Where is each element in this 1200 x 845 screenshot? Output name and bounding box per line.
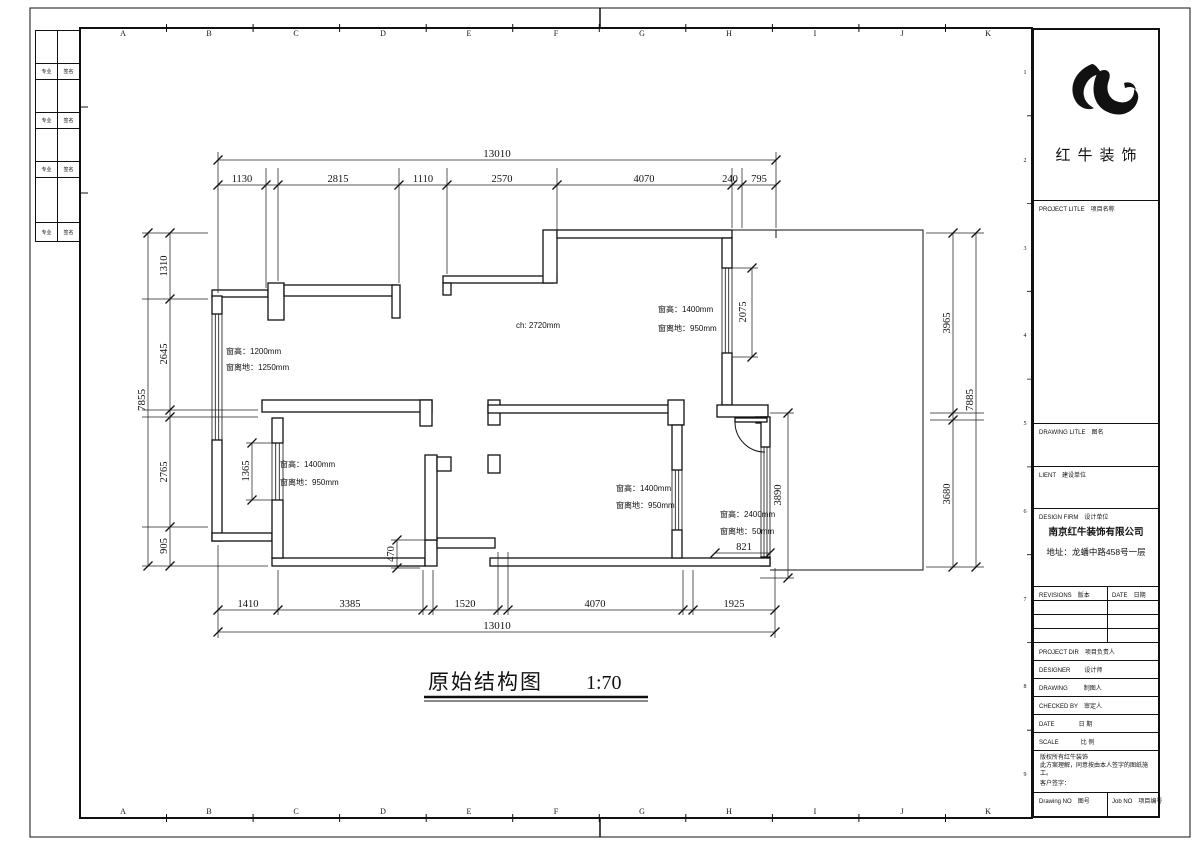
field-label-en: Drawing NO [1039, 799, 1072, 805]
field-project-title: PROJECT LITLE项目名称 [1039, 204, 1115, 213]
annotation-window: 窗高：1400mm [280, 459, 335, 469]
field-drawing-person: DRAWING制图人 [1039, 683, 1102, 692]
sheet-frame [30, 8, 1190, 837]
field-label-en: DESIGNER [1039, 668, 1070, 674]
field-client: LIENT建设单位 [1039, 470, 1086, 479]
field-label-cn: 建设单位 [1062, 473, 1086, 479]
signoff-cell: 签名 [57, 162, 79, 177]
dim-left-total: 7855 [136, 389, 148, 412]
annotation-window: 窗高：1400mm [658, 304, 713, 314]
dim-left-seg: 905 [159, 538, 170, 554]
grid-letter: A [120, 807, 126, 816]
annotation-window: 窗高：1400mm [616, 483, 671, 493]
customer-sign-label: 客户签字： [1040, 778, 1070, 787]
field-label-en: SCALE [1039, 740, 1059, 746]
dim-bottom-seg: 1410 [238, 599, 259, 610]
field-scale-row: SCALE比 例 [1039, 737, 1094, 746]
window-left-lower [272, 443, 283, 500]
copyright-line1: 版权所有红牛装饰 [1040, 754, 1156, 762]
dim-right-seg: 3965 [942, 313, 953, 334]
dim-right: 3965 3680 7885 [926, 229, 984, 572]
dim-top-seg: 240 [722, 174, 738, 185]
field-label-en: DATE [1039, 722, 1055, 728]
field-designer: DESIGNER设计师 [1039, 665, 1102, 674]
grid-number: 3 [1024, 246, 1027, 252]
grid-letter: C [293, 29, 298, 38]
copyright-line2: 此方案理解，同意按由本人签字的图纸施工。 [1040, 762, 1156, 778]
grid-number: 2 [1024, 158, 1027, 164]
grid-letter: B [206, 807, 211, 816]
field-label-cn: 比 例 [1081, 740, 1095, 746]
window-left-upper [212, 314, 222, 440]
brand-logo [1034, 44, 1158, 154]
dim-top-seg: 1130 [232, 174, 253, 185]
dim-top-seg: 795 [751, 174, 767, 185]
grid-letter: K [985, 29, 991, 38]
grid-letters-top: A B C D E F G H I J K [120, 24, 991, 38]
field-label-cn: 日 期 [1079, 722, 1093, 728]
annotation-window: 窗离地：950mm [616, 500, 675, 510]
field-label-en: PROJECT DIR [1039, 650, 1079, 656]
firm-address: 地址：龙蟠中路458号一层 [1034, 546, 1158, 558]
annotation-window: 窗离地：950mm [280, 477, 339, 487]
annotation-window: 窗高：2400mm [720, 509, 775, 519]
field-checked-by: CHECKED BY审定人 [1039, 701, 1102, 710]
dim-right-seg: 3680 [942, 484, 953, 505]
field-label-cn: 图名 [1091, 430, 1103, 436]
field-project-dir: PROJECT DIR项目负责人 [1039, 647, 1115, 656]
field-label-cn: 项目编号 [1138, 799, 1162, 805]
signoff-row: 专业 签名 [36, 63, 79, 79]
field-label-en: LIENT [1039, 473, 1056, 479]
grid-letter: B [206, 29, 211, 38]
dim-left-seg: 2645 [159, 344, 170, 365]
grid-letter: J [900, 807, 903, 816]
annotation-window: 窗高：1200mm [226, 346, 281, 356]
field-date-col: DATE日期 [1112, 590, 1146, 599]
annotation-window: 窗离地：1250mm [226, 362, 289, 372]
signoff-row: 专业 签名 [36, 112, 79, 128]
field-label-cn: 项目负责人 [1085, 650, 1115, 656]
brand-name: 红牛装饰 [1034, 144, 1158, 165]
dim-window-1365: 1365 [241, 461, 252, 482]
annotation-ceiling-height: ch: 2720mm [516, 321, 560, 330]
drawing-sheet: A B C D E F G H I J K A B C D E F G H I … [0, 0, 1200, 845]
field-label-en: CHECKED BY [1039, 704, 1078, 710]
drawing-scale-text: 1:70 [586, 672, 622, 694]
field-label-cn: 项目名称 [1091, 207, 1115, 213]
grid-number: 1 [1024, 70, 1027, 76]
firm-name: 南京红牛装饰有限公司 [1034, 524, 1158, 538]
grid-letter: I [814, 29, 817, 38]
signoff-blank [36, 177, 79, 222]
field-label-cn: 版本 [1078, 593, 1090, 599]
dim-top-seg: 2815 [328, 174, 349, 185]
grid-letter: H [726, 29, 732, 38]
grid-letter: H [726, 807, 732, 816]
grid-letter: G [639, 29, 645, 38]
field-label-en: PROJECT LITLE [1039, 207, 1085, 213]
dim-top-total: 13010 [483, 148, 511, 160]
drawing-title: 原始结构图 1:70 [424, 670, 648, 701]
field-date-row: DATE日 期 [1039, 719, 1092, 728]
grid-letter: G [639, 807, 645, 816]
field-label-cn: 图号 [1078, 799, 1090, 805]
dim-step-470: 470 [386, 546, 397, 562]
field-label-cn: 制图人 [1084, 686, 1102, 692]
field-label-cn: 审定人 [1084, 704, 1102, 710]
field-label-en: DRAWING LITLE [1039, 430, 1085, 436]
walls [212, 230, 923, 570]
grid-number: 4 [1024, 333, 1027, 339]
signoff-blank [36, 128, 79, 161]
dim-bottom-seg: 3385 [340, 599, 361, 610]
window-bath [761, 447, 770, 557]
dim-bottom-total: 13010 [483, 620, 511, 632]
grid-number: 8 [1024, 684, 1027, 690]
grid-letter: F [554, 807, 559, 816]
grid-letter: K [985, 807, 991, 816]
signoff-row: 专业 签名 [36, 161, 79, 177]
field-label-cn: 日期 [1134, 593, 1146, 599]
signoff-cell: 签名 [57, 64, 79, 79]
signoff-row: 专业 签名 [36, 222, 79, 241]
grid-letters-bottom: A B C D E F G H I J K [120, 807, 991, 822]
field-drawing-title: DRAWING LITLE图名 [1039, 427, 1103, 436]
title-block: 红牛装饰 PROJECT LITLE项目名称 DRAWING LITLE图名 L… [1032, 28, 1160, 818]
floor-plan-canvas: A B C D E F G H I J K A B C D E F G H I … [0, 0, 1200, 845]
annotation-window: 窗离地：50mm [720, 526, 775, 536]
signoff-cell: 签名 [57, 113, 79, 128]
signoff-cell: 专业 [36, 113, 57, 128]
copyright-note: 版权所有红牛装饰 此方案理解，同意按由本人签字的图纸施工。 [1040, 754, 1156, 778]
grid-letter: D [380, 29, 386, 38]
dim-top-seg: 1110 [413, 174, 433, 185]
window-center [672, 470, 682, 530]
dim-left-seg: 1310 [159, 256, 170, 277]
dim-top-seg: 4070 [634, 174, 655, 185]
signoff-cell: 专业 [36, 223, 57, 241]
grid-number: 5 [1024, 421, 1027, 427]
dim-top: 13010 1130 2815 1110 2570 4070 240 795 [214, 148, 781, 293]
grid-number: 7 [1024, 597, 1027, 603]
signoff-strip: 专业 签名 专业 签名 专业 签名 专业 签名 [35, 30, 80, 242]
grid-letter: E [467, 29, 472, 38]
field-design-firm: DESIGN FIRM设计单位 [1039, 512, 1108, 521]
dim-window-2075: 2075 [738, 302, 749, 323]
signoff-cell: 签名 [57, 223, 79, 241]
dim-bath-821: 821 [736, 542, 752, 553]
field-label-en: DATE [1112, 593, 1128, 599]
grid-letter: I [814, 807, 817, 816]
annotations: 窗高：1200mm 窗离地：1250mm ch: 2720mm 窗高：1400m… [226, 304, 775, 536]
window-right-upper [722, 268, 732, 353]
dim-left: 1310 2645 2765 905 7855 [136, 229, 268, 571]
grid-letter: D [380, 807, 386, 816]
grid-letter: J [900, 29, 903, 38]
dim-bottom-seg: 4070 [585, 599, 606, 610]
signoff-cell: 专业 [36, 64, 57, 79]
dim-bottom-seg: 1925 [724, 599, 745, 610]
dim-top-seg: 2570 [492, 174, 513, 185]
dim-bottom-seg: 1520 [455, 599, 476, 610]
signoff-cell: 专业 [36, 162, 57, 177]
annotation-window: 窗离地：950mm [658, 323, 717, 333]
grid-letter: F [554, 29, 559, 38]
field-label-cn: 设计单位 [1084, 515, 1108, 521]
field-label-en: DESIGN FIRM [1039, 515, 1078, 521]
signoff-blank [36, 31, 79, 63]
field-job-no: Job NO项目编号 [1112, 796, 1162, 805]
dim-right-total: 7885 [964, 389, 976, 412]
grid-letter: E [467, 807, 472, 816]
field-drawing-no: Drawing NO图号 [1039, 796, 1090, 805]
signoff-blank [36, 79, 79, 112]
drawing-title-text: 原始结构图 [428, 670, 543, 694]
dim-bath-3890: 3890 [773, 485, 784, 506]
field-revisions: REVISIONS版本 [1039, 590, 1090, 599]
field-label-en: DRAWING [1039, 686, 1068, 692]
grid-number: 6 [1024, 509, 1027, 515]
field-label-en: REVISIONS [1039, 593, 1072, 599]
grid-letter: A [120, 29, 126, 38]
field-label-en: Job NO [1112, 799, 1132, 805]
field-label-cn: 设计师 [1084, 668, 1102, 674]
grid-number: 9 [1024, 772, 1027, 778]
grid-letter: C [293, 807, 298, 816]
dim-left-seg: 2765 [159, 462, 170, 483]
